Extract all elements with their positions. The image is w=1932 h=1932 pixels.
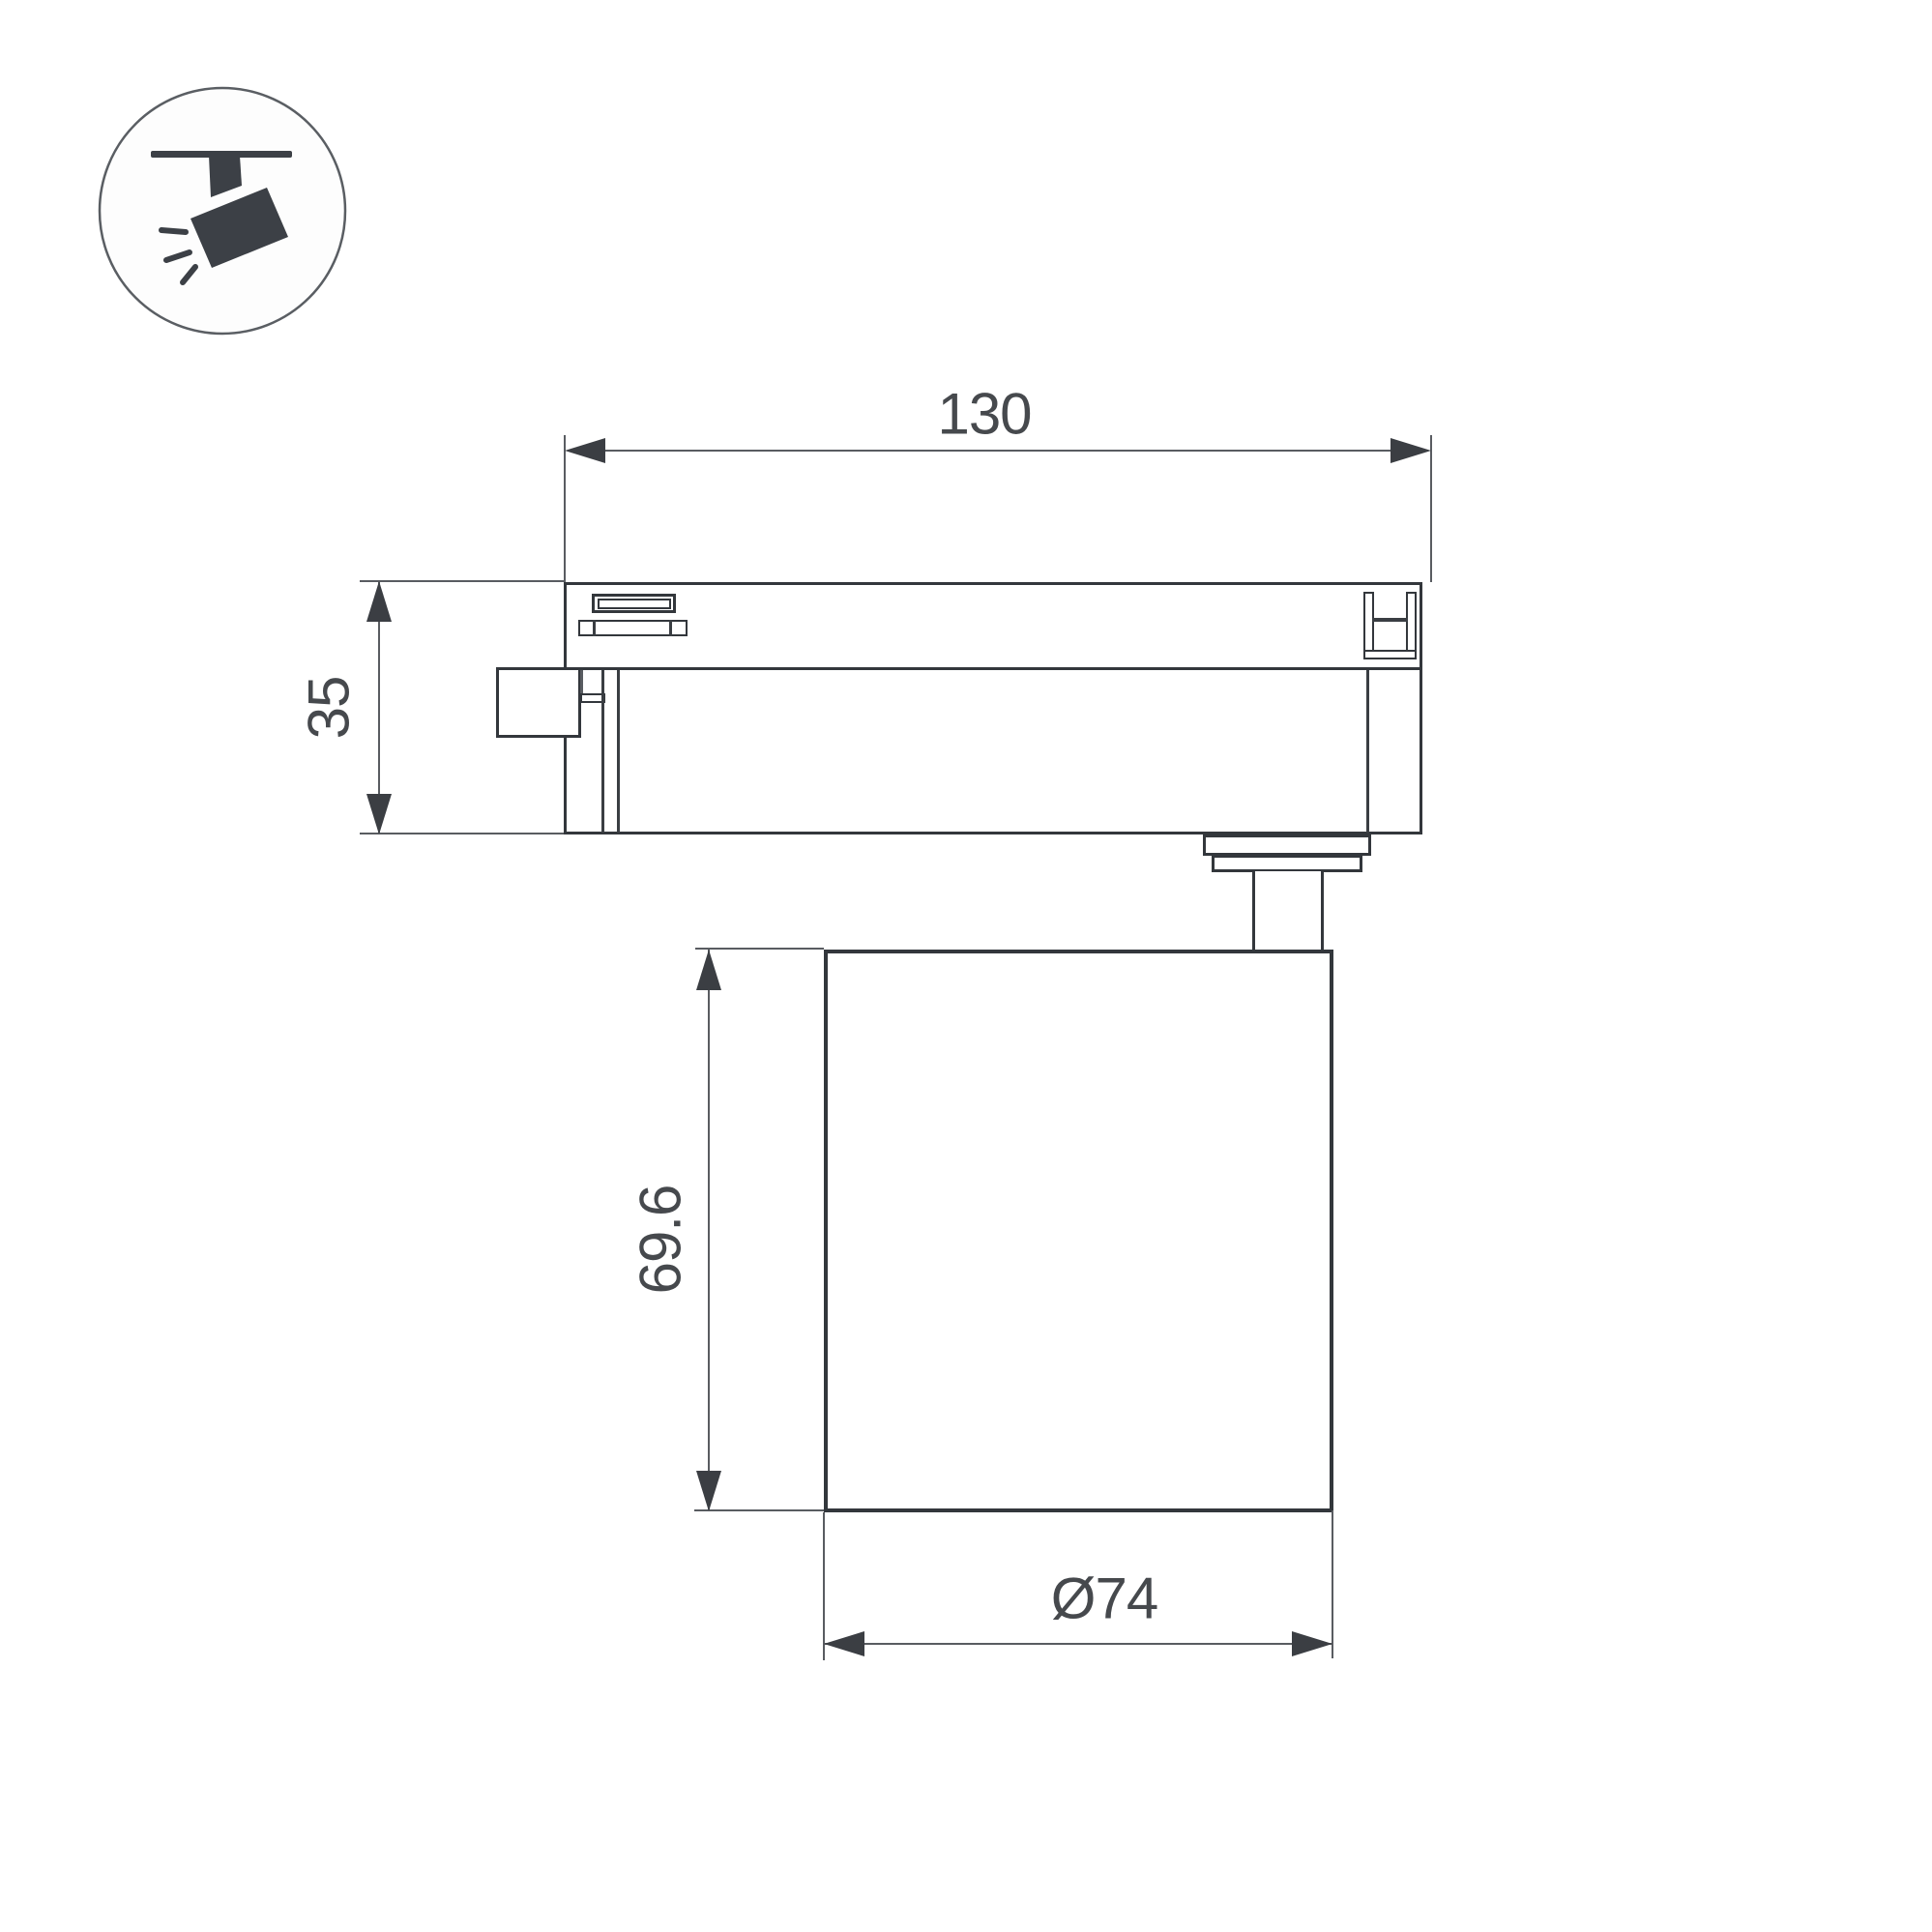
dim-69-line xyxy=(708,949,710,1511)
gear-body-outline xyxy=(564,670,1422,834)
adapter-bracket-bottom-bar xyxy=(1363,650,1417,659)
lever-step-line xyxy=(580,670,583,695)
track-adapter-outline xyxy=(564,582,1422,670)
body-inner-line-right xyxy=(1366,670,1369,833)
dim-35-arrow-up xyxy=(366,581,392,622)
adapter-bracket-wall-right xyxy=(1406,592,1417,656)
adapter-bracket-wall-left xyxy=(1363,592,1374,656)
dim-69-arrow-up xyxy=(696,950,721,990)
dim-130-arrow-right xyxy=(1390,438,1431,463)
dim-74-label: Ø74 xyxy=(1051,1566,1157,1632)
dim-69-label: 69.6 xyxy=(628,1186,694,1295)
adapter-clip-lower-divider-left xyxy=(593,620,596,636)
drawing-canvas: 130 35 69.6 Ø74 xyxy=(0,0,1932,1932)
dim-74-line xyxy=(824,1643,1332,1645)
adapter-clip-lower-divider-right xyxy=(669,620,672,636)
swivel-flange-step2 xyxy=(1212,855,1362,872)
track-spotlight-icon xyxy=(95,85,350,338)
dim-130-arrow-left xyxy=(565,438,605,463)
locking-lever xyxy=(496,667,581,738)
swivel-flange-step1 xyxy=(1203,834,1371,856)
adapter-bracket-middle-bar xyxy=(1372,618,1408,622)
dim-74-arrow-right xyxy=(1292,1631,1332,1656)
dim-130-line xyxy=(569,450,1427,452)
dim-74-arrow-left xyxy=(824,1631,864,1656)
body-inner-line-left-a xyxy=(601,670,604,833)
dim-35-arrow-down xyxy=(366,794,392,834)
dim-130-label: 130 xyxy=(937,381,1031,448)
lamp-head-outline xyxy=(824,950,1333,1512)
swivel-stem xyxy=(1252,871,1324,952)
dim-69-arrow-down xyxy=(696,1471,721,1511)
body-inner-line-left-b xyxy=(617,670,620,833)
dim-35-label: 35 xyxy=(296,677,363,740)
adapter-clip-upper-inner xyxy=(598,599,671,609)
